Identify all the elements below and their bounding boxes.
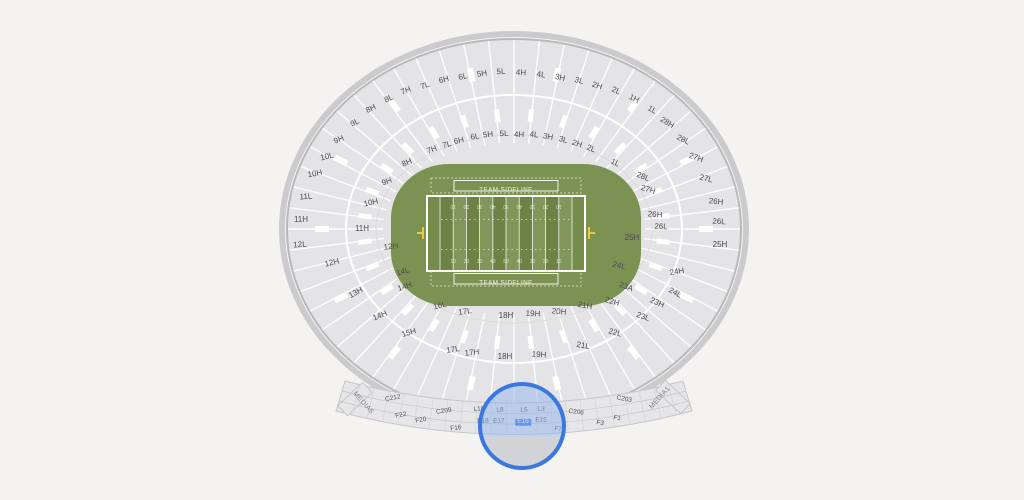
section-label[interactable]: 28H (659, 116, 676, 131)
section-label[interactable]: 10L (320, 152, 335, 163)
section-label[interactable]: 17L (458, 307, 472, 317)
section-label[interactable]: 18H (498, 353, 513, 361)
section-label[interactable]: 16L (433, 301, 448, 312)
section-label[interactable]: 23A (618, 281, 634, 293)
section-label[interactable]: 14H (372, 310, 389, 323)
section-label[interactable]: 22H (604, 296, 620, 308)
section-label[interactable]: C209 (436, 408, 452, 417)
section-label[interactable]: 27H (640, 184, 656, 196)
section-label[interactable]: 8H (365, 103, 378, 115)
section-label[interactable]: 24L (667, 286, 683, 299)
section-label[interactable]: 7L (419, 81, 430, 91)
section-label[interactable]: 1L (646, 104, 658, 115)
section-label[interactable]: 9L (349, 117, 361, 128)
section-label[interactable]: 2L (610, 86, 621, 97)
section-label[interactable]: 21H (577, 301, 593, 311)
section-label[interactable]: 6L (458, 72, 468, 82)
section-label[interactable]: 28L (675, 133, 691, 146)
section-label[interactable]: F22 (395, 412, 407, 421)
section-label[interactable]: 12L (293, 241, 307, 250)
section-label[interactable]: 8H (401, 157, 414, 168)
section-label[interactable]: 9H (381, 176, 393, 187)
section-label[interactable]: F3 (596, 420, 605, 428)
section-label[interactable]: 10H (307, 169, 323, 179)
section-label[interactable]: 21L (576, 341, 591, 351)
section-label[interactable]: 6L (470, 132, 480, 141)
section-label[interactable]: 12H (324, 257, 340, 268)
section-label[interactable]: 14L (395, 266, 410, 277)
section-label[interactable]: 3L (558, 135, 569, 145)
section-label[interactable]: 28L (635, 171, 650, 183)
section-label[interactable]: 25H (625, 234, 640, 242)
section-label[interactable]: 11L (299, 193, 312, 202)
section-label[interactable]: 13H (348, 286, 365, 300)
section-label[interactable]: 7H (426, 144, 438, 155)
section-label[interactable]: 26H (708, 197, 724, 207)
section-label[interactable]: 17L (446, 345, 460, 355)
section-label[interactable]: C203 (616, 395, 633, 404)
section-label[interactable]: 20H (551, 307, 566, 316)
section-label[interactable]: 5L (499, 130, 508, 138)
section-label[interactable]: 23H (649, 296, 666, 309)
section-label[interactable]: 19H (531, 350, 546, 359)
section-label[interactable]: 4L (536, 70, 546, 79)
section-label[interactable]: 8L (383, 93, 395, 104)
section-label[interactable]: 9H (333, 134, 345, 145)
zoom-magnifier[interactable] (478, 382, 566, 470)
section-label[interactable]: C206 (568, 409, 584, 417)
section-label[interactable]: 7L (442, 140, 453, 150)
section-label[interactable]: F16 (450, 425, 462, 433)
section-label[interactable]: 26L (654, 223, 668, 231)
section-label[interactable]: 15H (401, 327, 417, 339)
section-label[interactable]: 4H (514, 131, 525, 139)
section-label[interactable]: 5H (483, 131, 494, 140)
section-label[interactable]: 2H (591, 81, 603, 92)
section-label[interactable]: 25H (713, 241, 728, 249)
section-label[interactable]: 6H (453, 136, 465, 146)
section-label[interactable]: 26H (647, 210, 662, 219)
section-label[interactable]: 4L (529, 131, 539, 140)
section-label[interactable]: 3H (542, 132, 553, 142)
section-label[interactable]: 2L (585, 144, 596, 155)
section-label[interactable]: 27H (688, 152, 705, 165)
section-label[interactable]: 5L (496, 68, 505, 76)
seating-map: { "canvas": {"w": 1024, "h": 500, "bg": … (0, 0, 1024, 500)
section-label[interactable]: 10H (363, 198, 379, 209)
section-label[interactable]: 1L (609, 157, 621, 168)
section-label[interactable]: 24L (612, 261, 627, 272)
section-label[interactable]: 1H (628, 93, 641, 105)
section-label[interactable]: 19H (525, 310, 540, 319)
section-label[interactable]: 17H (464, 348, 479, 357)
section-label[interactable]: 26L (712, 218, 726, 226)
media-label: MEDIA6 (351, 391, 374, 416)
section-label[interactable]: 23L (635, 311, 650, 323)
section-label[interactable]: 3H (554, 73, 566, 83)
section-label[interactable]: 12H (383, 242, 398, 251)
section-label[interactable]: 18H (499, 312, 514, 320)
section-label[interactable]: 5H (476, 69, 487, 78)
section-label[interactable]: F1 (613, 415, 622, 423)
section-label[interactable]: F20 (415, 417, 427, 425)
section-label[interactable]: 24H (669, 267, 685, 277)
section-label[interactable]: 6H (438, 75, 450, 86)
section-label[interactable]: 22L (607, 327, 622, 338)
section-label[interactable]: 2H (571, 139, 583, 150)
section-label[interactable]: 27L (699, 174, 714, 185)
section-label[interactable]: 7H (400, 85, 412, 96)
section-label[interactable]: 11H (355, 225, 369, 233)
section-label[interactable]: 3L (574, 76, 585, 86)
section-label[interactable]: 14H (397, 281, 414, 294)
section-label[interactable]: C212 (385, 394, 401, 403)
section-label[interactable]: 11H (294, 216, 308, 224)
media-label: MEDIA1 (648, 386, 671, 411)
section-label[interactable]: 4H (516, 69, 527, 78)
